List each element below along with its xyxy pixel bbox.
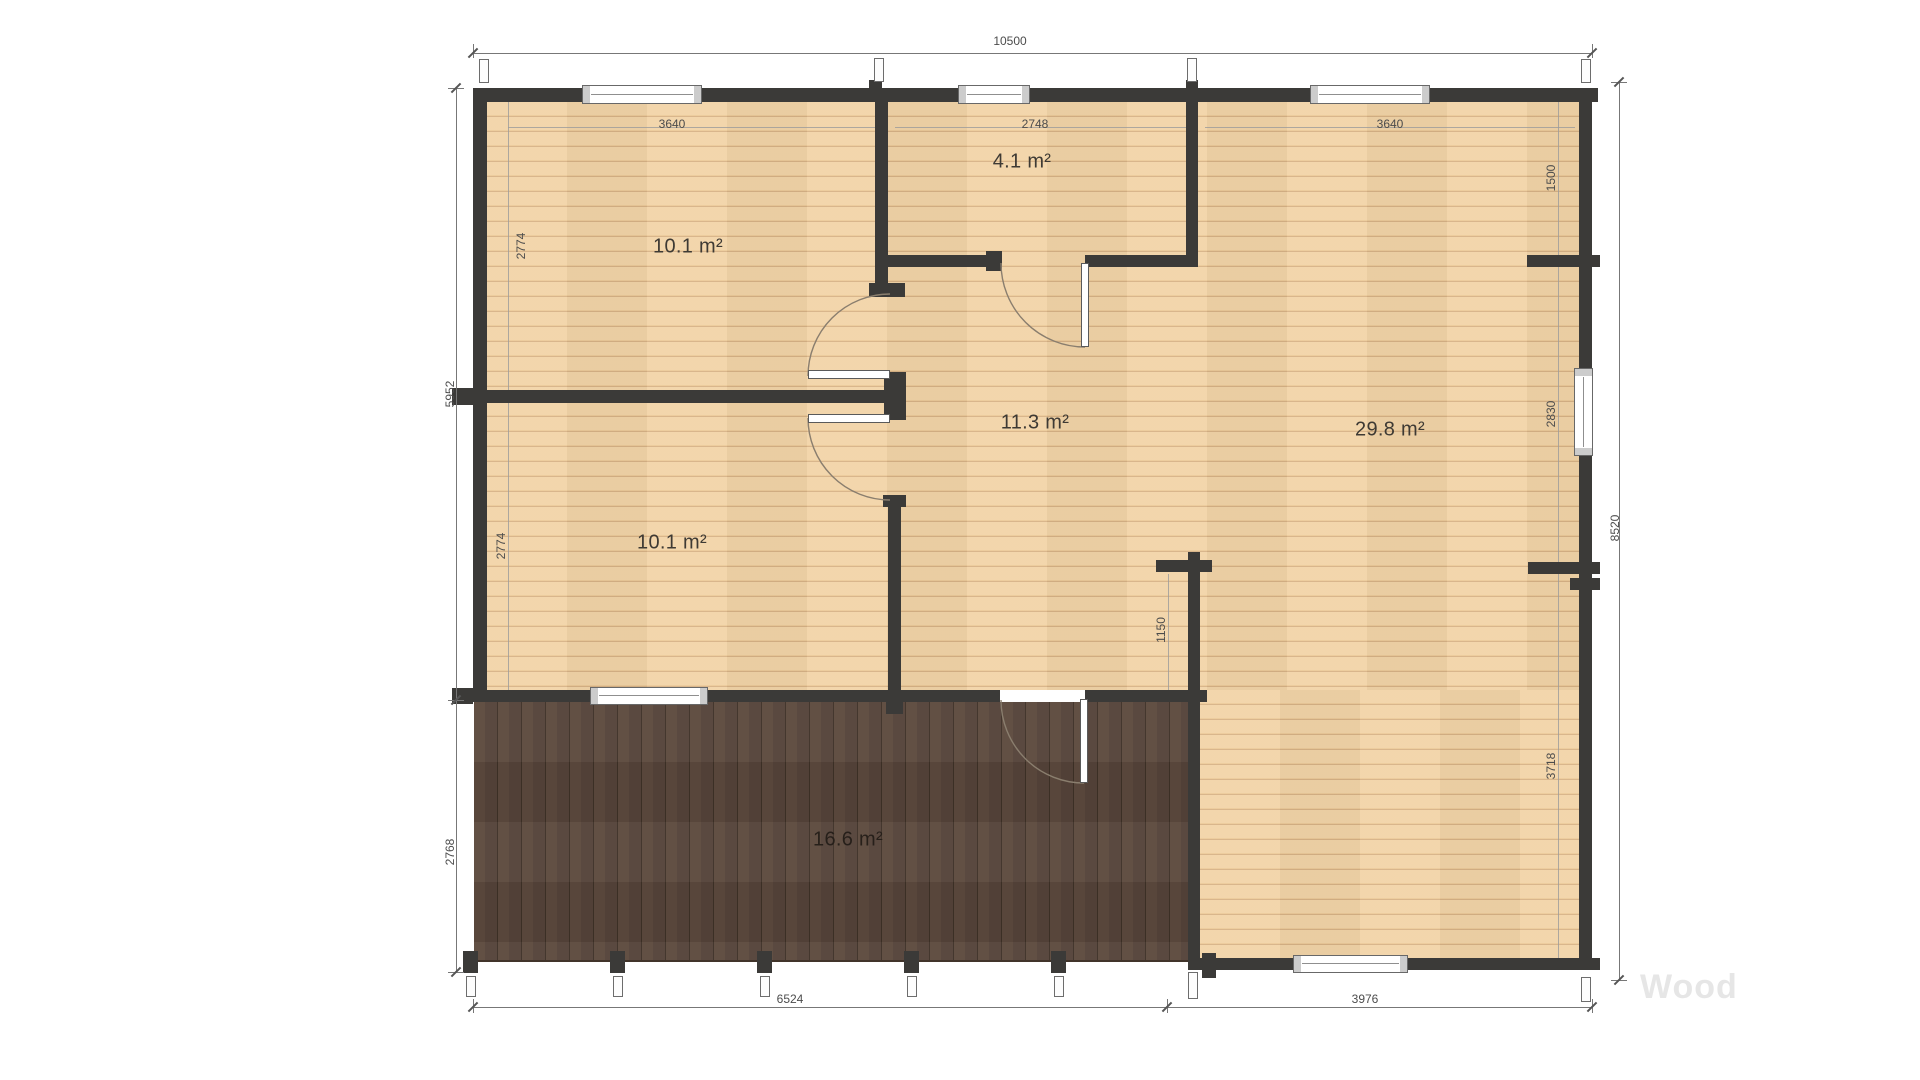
floor-plan-canvas: 10500 3640 2748 3640 2774 2774 5952 2768…	[0, 0, 1920, 1080]
door-swing-arcs	[0, 0, 1920, 1080]
dim-terrace-depth: 2768	[443, 839, 457, 866]
dim-top-left: 3640	[659, 117, 686, 131]
dim-right-lower: 3718	[1544, 753, 1558, 780]
dim-left-main: 5952	[443, 381, 457, 408]
dim-top-right: 3640	[1377, 117, 1404, 131]
door-arc-small-room	[1001, 263, 1085, 347]
dim-left-upper: 2774	[514, 233, 528, 260]
dim-line-top	[473, 53, 1592, 54]
dim-total-height: 8520	[1608, 515, 1622, 542]
room-label-terrace: 16.6 m²	[813, 829, 883, 852]
room-label-large: 29.8 m²	[1355, 419, 1425, 442]
door-leaf-terrace	[1080, 699, 1088, 783]
dim-top-mid: 2748	[1022, 117, 1049, 131]
dim-left-lower: 2774	[494, 533, 508, 560]
door-arc-bottom-room	[808, 418, 890, 500]
dim-total-width: 10500	[989, 34, 1030, 48]
door-arc-terrace	[1001, 700, 1084, 783]
dim-line-bottom	[473, 1007, 1592, 1008]
room-label-hall: 11.3 m²	[1001, 412, 1069, 435]
dim-hall-depth: 1150	[1154, 617, 1168, 643]
door-leaf-bottom-room	[808, 414, 890, 423]
room-label-top-left: 10.1 m²	[653, 236, 723, 259]
door-arc-top-room	[808, 294, 890, 376]
dim-bottom-left: 6524	[773, 992, 808, 1006]
dim-right-upper: 1500	[1544, 165, 1558, 192]
dim-bottom-right: 3976	[1348, 992, 1383, 1006]
door-leaf-top-room	[808, 370, 890, 379]
room-label-bottom-left: 10.1 m²	[637, 532, 707, 555]
room-label-small: 4.1 m²	[993, 151, 1051, 174]
watermark-logo: Wood	[1640, 968, 1738, 1007]
door-leaf-small-room	[1081, 263, 1089, 347]
dim-right-mid: 2830	[1544, 401, 1558, 428]
